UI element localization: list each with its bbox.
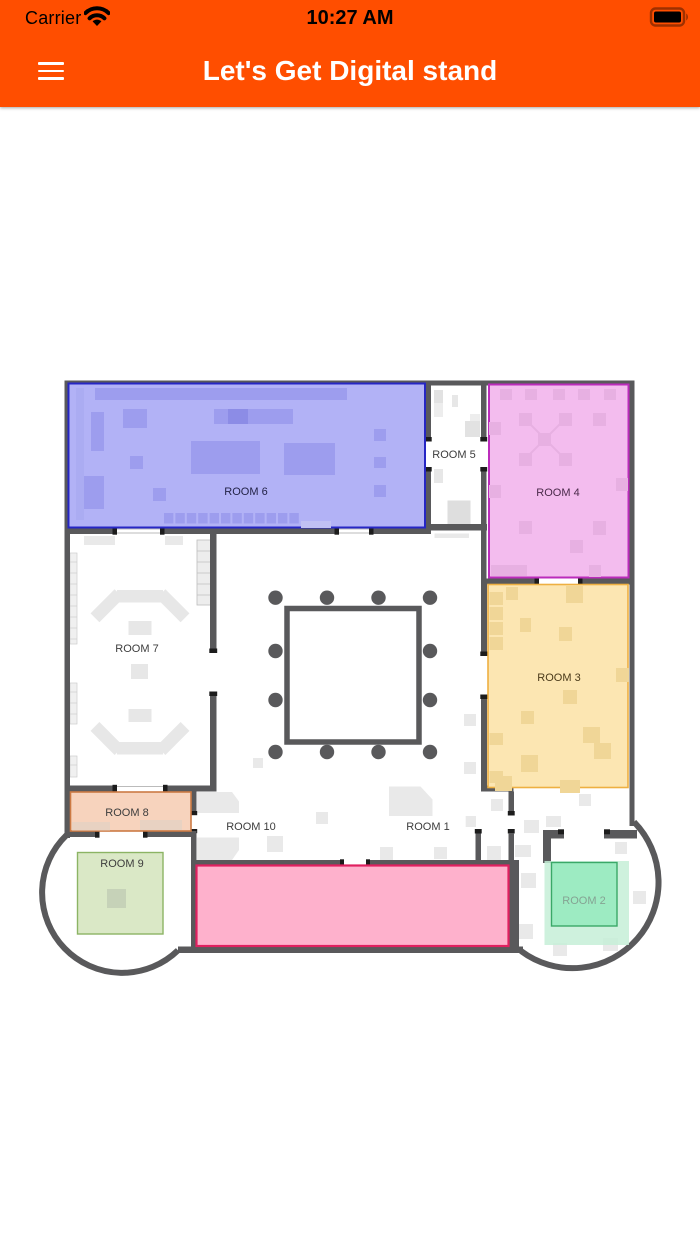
svg-text:ROOM 6: ROOM 6	[224, 486, 267, 498]
svg-text:ROOM 3: ROOM 3	[537, 672, 580, 684]
svg-text:ROOM 4: ROOM 4	[536, 487, 579, 499]
svg-text:ROOM 1: ROOM 1	[406, 821, 449, 833]
svg-text:ROOM 10: ROOM 10	[226, 821, 276, 833]
svg-text:ROOM 5: ROOM 5	[432, 449, 475, 461]
svg-text:ROOM 2: ROOM 2	[562, 895, 605, 907]
svg-text:ROOM 9: ROOM 9	[100, 858, 143, 870]
svg-text:ROOM 8: ROOM 8	[105, 807, 148, 819]
svg-text:ROOM 7: ROOM 7	[115, 643, 158, 655]
